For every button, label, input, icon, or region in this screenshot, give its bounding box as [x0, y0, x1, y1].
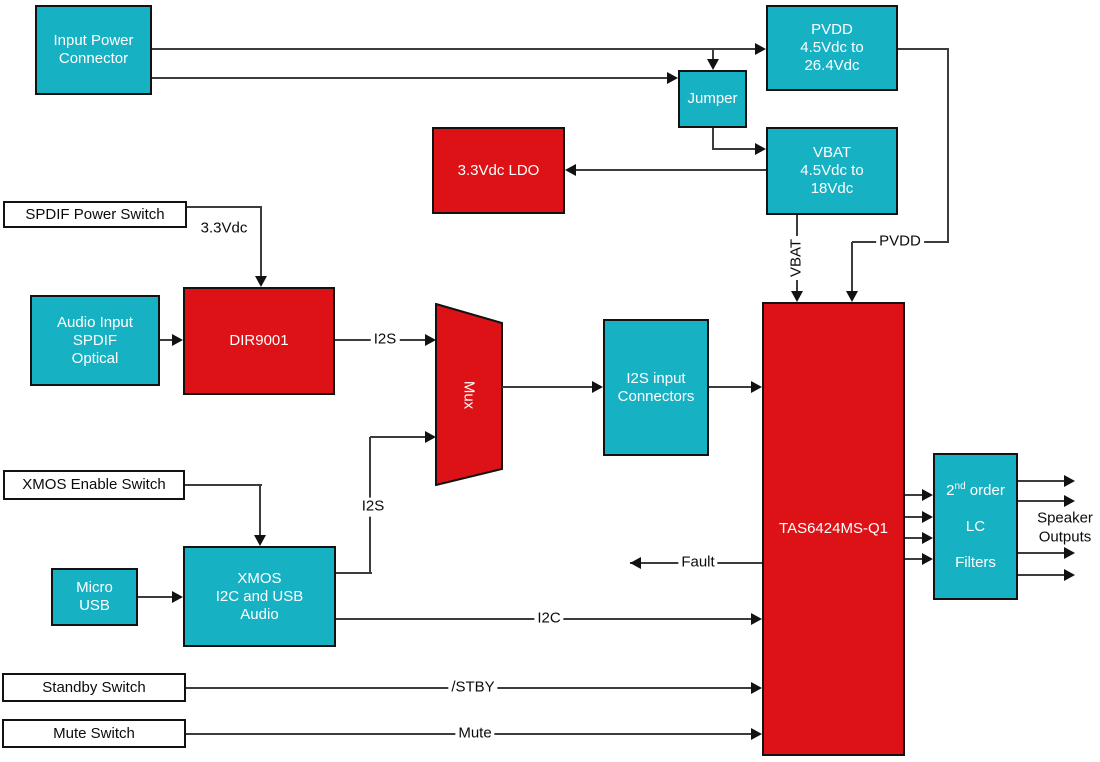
arrowhead-right-icon — [755, 43, 766, 55]
block-pvdd-supply: PVDD 4.5Vdc to 26.4Vdc — [766, 5, 898, 91]
block-ldo-3v3: 3.3Vdc LDO — [432, 127, 565, 214]
net-label-stby: /STBY — [448, 679, 497, 698]
block-i2s-input-connectors: I2S input Connectors — [603, 319, 709, 456]
wire — [576, 169, 766, 171]
wire — [712, 49, 714, 59]
wire — [152, 48, 756, 50]
net-label-fault: Fault — [678, 554, 717, 573]
arrowhead-right-icon — [172, 334, 183, 346]
net-label-3v3: 3.3Vdc — [198, 220, 251, 239]
arrowhead-right-icon — [922, 553, 933, 565]
wire — [713, 148, 756, 150]
net-label-pvdd: PVDD — [876, 233, 924, 252]
arrowhead-left-icon — [630, 557, 641, 569]
arrowhead-right-icon — [1064, 495, 1075, 507]
arrowhead-down-icon — [254, 535, 266, 546]
block-lc-filters: 2nd order LC Filters — [933, 453, 1018, 600]
block-xmos-enable-switch: XMOS Enable Switch — [3, 470, 185, 500]
wire — [712, 128, 714, 150]
wire — [152, 77, 668, 79]
arrowhead-right-icon — [425, 334, 436, 346]
net-label-speaker-outputs: Speaker Outputs — [1034, 509, 1096, 547]
net-label-i2s-xmos: I2S — [359, 498, 388, 517]
wire — [336, 572, 372, 574]
block-xmos-audio: XMOS I2C and USB Audio — [183, 546, 336, 647]
arrowhead-right-icon — [1064, 569, 1075, 581]
arrowhead-right-icon — [922, 489, 933, 501]
lc-filters-order-line: 2nd order — [946, 482, 1005, 500]
arrowhead-right-icon — [922, 511, 933, 523]
arrowhead-right-icon — [592, 381, 603, 393]
arrowhead-right-icon — [751, 682, 762, 694]
arrowhead-right-icon — [172, 591, 183, 603]
arrowhead-right-icon — [751, 613, 762, 625]
arrowhead-down-icon — [846, 291, 858, 302]
arrowhead-right-icon — [751, 381, 762, 393]
wire — [1018, 500, 1064, 502]
wire — [905, 558, 922, 560]
wire — [1018, 480, 1064, 482]
wire — [260, 207, 262, 277]
arrowhead-right-icon — [1064, 547, 1075, 559]
wire — [905, 494, 922, 496]
arrowhead-right-icon — [1064, 475, 1075, 487]
wire — [185, 484, 262, 486]
wire — [1018, 574, 1064, 576]
wire — [851, 242, 853, 292]
block-vbat-supply: VBAT 4.5Vdc to 18Vdc — [766, 127, 898, 215]
wire — [259, 485, 261, 536]
arrowhead-left-icon — [565, 164, 576, 176]
net-label-i2c: I2C — [534, 610, 563, 629]
arrowhead-right-icon — [755, 143, 766, 155]
net-label-i2s-dir: I2S — [371, 331, 400, 350]
block-mute-switch: Mute Switch — [2, 719, 186, 748]
block-standby-switch: Standby Switch — [2, 673, 186, 702]
block-dir9001: DIR9001 — [183, 287, 335, 395]
block-spdif-power-switch: SPDIF Power Switch — [3, 201, 187, 228]
wire — [1018, 552, 1064, 554]
wire — [502, 386, 593, 388]
arrowhead-right-icon — [922, 532, 933, 544]
wire — [370, 436, 426, 438]
block-micro-usb: Micro USB — [51, 568, 138, 626]
wire — [138, 596, 173, 598]
block-audio-input-spdif: Audio Input SPDIF Optical — [30, 295, 160, 386]
lc-filters-line3: Filters — [946, 554, 1005, 572]
net-label-vbat: VBAT — [788, 236, 807, 280]
arrowhead-down-icon — [707, 59, 719, 70]
block-tas6424: TAS6424MS-Q1 — [762, 302, 905, 756]
net-label-mute: Mute — [455, 725, 494, 744]
lc-filters-line2: LC — [946, 518, 1005, 536]
block-mux-label: Mux — [461, 381, 478, 409]
block-jumper: Jumper — [678, 70, 747, 128]
wire — [905, 516, 922, 518]
block-input-power-connector: Input Power Connector — [35, 5, 152, 95]
wire — [947, 49, 949, 243]
arrowhead-down-icon — [791, 291, 803, 302]
arrowhead-right-icon — [751, 728, 762, 740]
wire — [709, 386, 752, 388]
arrowhead-right-icon — [667, 72, 678, 84]
arrowhead-down-icon — [255, 276, 267, 287]
wire — [187, 206, 262, 208]
block-diagram: Input Power Connector PVDD 4.5Vdc to 26.… — [0, 0, 1100, 762]
wire — [905, 537, 922, 539]
wire — [898, 48, 949, 50]
arrowhead-right-icon — [425, 431, 436, 443]
